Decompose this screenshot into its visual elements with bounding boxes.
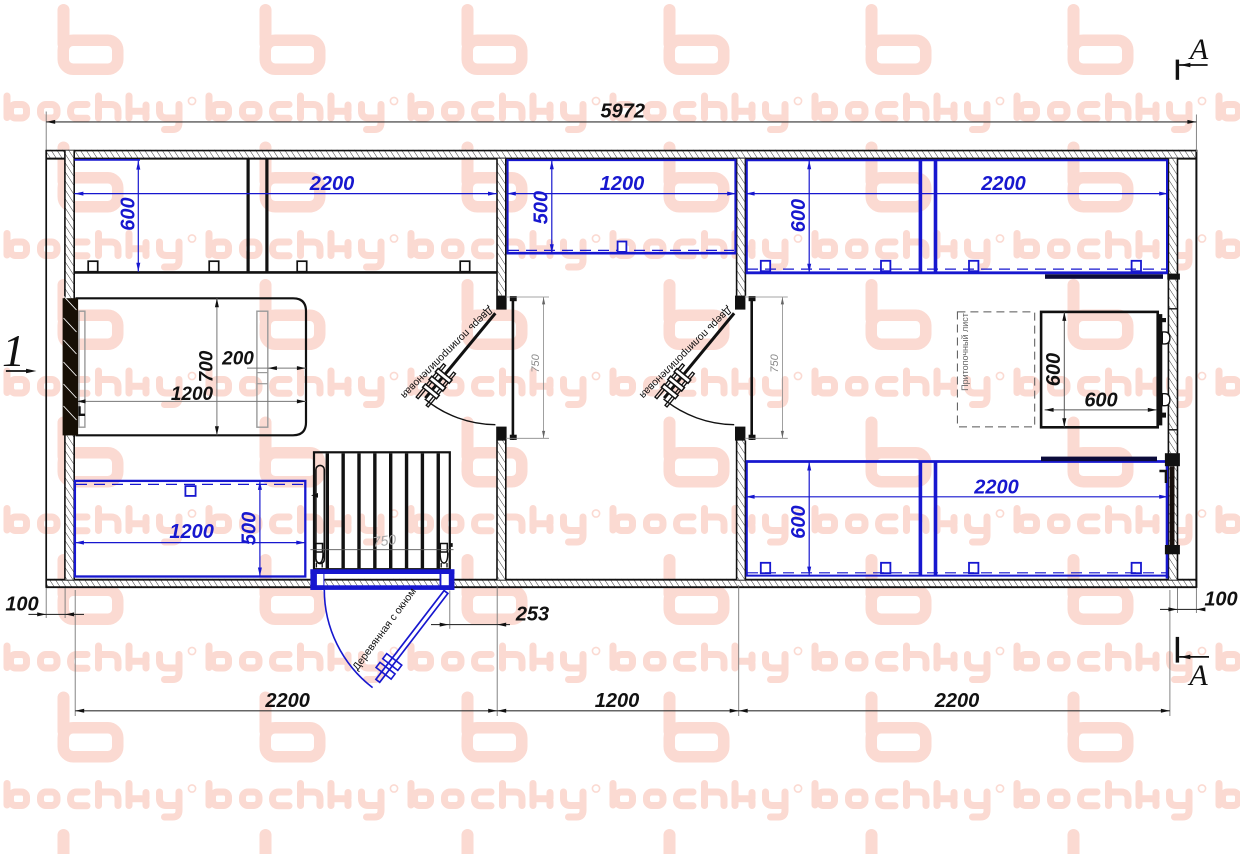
svg-text:600: 600 — [788, 199, 810, 232]
svg-text:500: 500 — [238, 512, 260, 545]
svg-text:2200: 2200 — [934, 690, 980, 712]
svg-text:2200: 2200 — [980, 173, 1026, 195]
svg-text:A: A — [1187, 659, 1208, 692]
svg-text:Притопочный лист: Притопочный лист — [960, 313, 970, 391]
svg-text:500: 500 — [530, 191, 552, 224]
svg-text:750: 750 — [372, 531, 397, 550]
svg-text:2200: 2200 — [309, 173, 355, 195]
svg-text:1200: 1200 — [169, 521, 214, 543]
svg-text:100: 100 — [5, 594, 38, 616]
svg-text:5972: 5972 — [601, 101, 646, 123]
svg-text:100: 100 — [1204, 589, 1237, 611]
svg-text:2200: 2200 — [973, 476, 1019, 498]
svg-text:600: 600 — [117, 197, 139, 230]
svg-text:1: 1 — [2, 325, 25, 376]
svg-text:600: 600 — [1084, 389, 1117, 411]
svg-text:600: 600 — [788, 505, 810, 538]
svg-text:1200: 1200 — [595, 690, 640, 712]
svg-text:750: 750 — [769, 353, 781, 372]
svg-text:600: 600 — [1043, 353, 1065, 386]
svg-text:2200: 2200 — [264, 690, 310, 712]
svg-text:750: 750 — [530, 353, 542, 372]
svg-text:700: 700 — [197, 350, 218, 382]
svg-text:253: 253 — [515, 603, 549, 625]
svg-text:A: A — [1188, 33, 1209, 66]
svg-text:1200: 1200 — [171, 384, 214, 405]
svg-text:200: 200 — [221, 348, 254, 369]
svg-text:1200: 1200 — [600, 173, 645, 195]
